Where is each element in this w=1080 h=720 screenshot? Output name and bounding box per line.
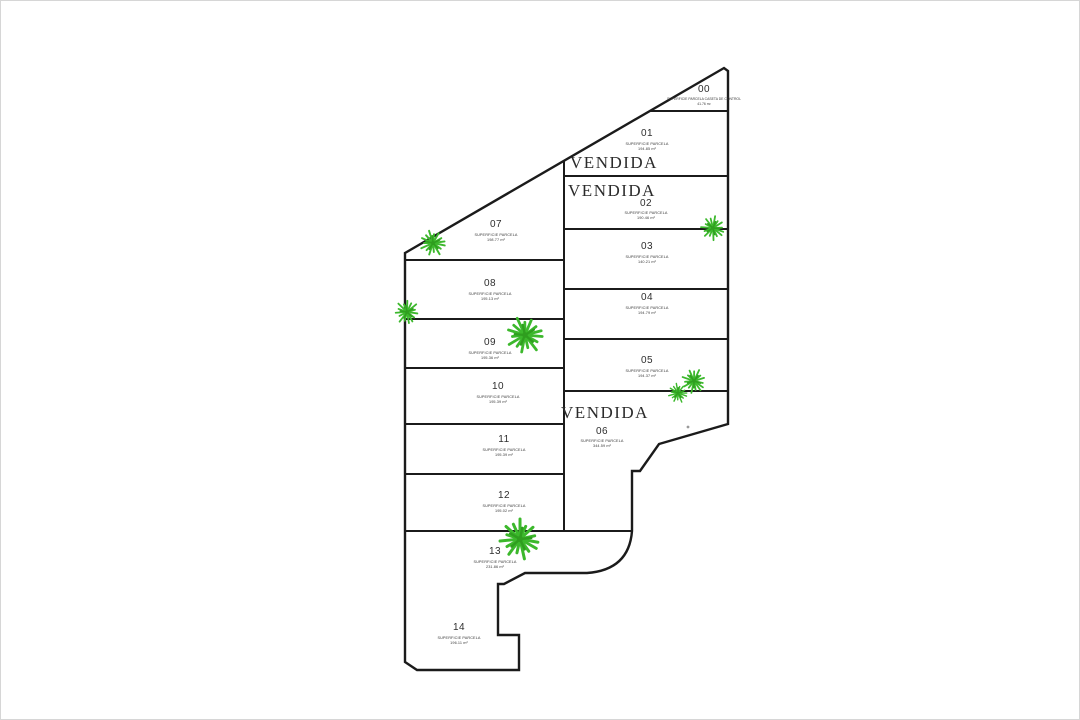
- palm-icon: [495, 515, 545, 565]
- parcel-02-type-label: SUPERFICIE PARCELA: [624, 211, 667, 215]
- parcel-05-type-label: SUPERFICIE PARCELA: [625, 369, 668, 373]
- parcel-01-vendida-label: VENDIDA: [570, 153, 658, 172]
- parcel-01-type-label: SUPERFICIE PARCELA: [625, 142, 668, 146]
- parcel-00-area: 41.76 m²: [697, 102, 711, 106]
- parcel-11-number: 11: [498, 434, 509, 445]
- parcel-06-area: 344.59 m²: [593, 444, 612, 448]
- parcel-02-number: 02: [640, 198, 652, 209]
- parcel-10-type-label: SUPERFICIE PARCELA: [476, 395, 519, 399]
- plot-map-svg: 00 SUPERFICIE PARCELA CASETA DE CONTROL …: [1, 1, 1080, 720]
- parcel-09-number: 09: [484, 337, 496, 348]
- plan-speck: [687, 426, 690, 429]
- parcel-11-type-label: SUPERFICIE PARCELA: [482, 448, 525, 452]
- parcel-12-type-label: SUPERFICIE PARCELA: [482, 504, 525, 508]
- parcel-14-area: 196.11 m²: [450, 641, 468, 645]
- parcel-06-vendida-label: VENDIDA: [561, 403, 649, 422]
- palm-icon: [507, 318, 544, 354]
- parcel-04-type-label: SUPERFICIE PARCELA: [625, 306, 668, 310]
- parcel-11-area: 195.39 m²: [495, 453, 514, 457]
- parcel-04-area: 194.79 m²: [638, 311, 657, 315]
- parcel-03-number: 03: [641, 241, 653, 252]
- parcel-05-area: 194.37 m²: [638, 374, 657, 378]
- parcel-10-area: 195.39 m²: [489, 400, 508, 404]
- parcel-plan-image: 00 SUPERFICIE PARCELA CASETA DE CONTROL …: [0, 0, 1080, 720]
- parcel-13-number: 13: [489, 546, 501, 557]
- parcel-00-type-label: SUPERFICIE PARCELA CASETA DE CONTROL: [667, 97, 741, 101]
- parcel-06-type-label: SUPERFICIE PARCELA: [580, 439, 623, 443]
- parcel-13-area: 231.86 m²: [486, 565, 505, 569]
- parcel-12-number: 12: [498, 490, 510, 501]
- parcel-01-number: 01: [641, 128, 653, 139]
- parcel-00-number: 00: [698, 84, 710, 95]
- parcel-08-area: 195.13 m²: [481, 297, 500, 301]
- parcel-08-type-label: SUPERFICIE PARCELA: [468, 292, 511, 296]
- parcel-07-area: 198.77 m²: [487, 238, 506, 242]
- parcel-01-area: 194.85 m²: [638, 147, 657, 151]
- palm-icon: [394, 299, 419, 325]
- palm-trees: [394, 213, 728, 565]
- parcel-05-number: 05: [641, 355, 653, 366]
- parcel-03-type-label: SUPERFICIE PARCELA: [625, 255, 668, 259]
- parcel-10-number: 10: [492, 381, 504, 392]
- parcel-04-number: 04: [641, 292, 653, 303]
- parcel-06-number: 06: [596, 426, 608, 437]
- parcel-dividers: [405, 111, 728, 531]
- parcel-14-number: 14: [453, 622, 465, 633]
- parcel-09-area: 195.36 m²: [481, 356, 500, 360]
- parcel-13-type-label: SUPERFICIE PARCELA: [473, 560, 516, 564]
- parcel-02-area: 190.46 m²: [637, 216, 656, 220]
- parcel-07-number: 07: [490, 219, 502, 230]
- parcel-08-number: 08: [484, 278, 496, 289]
- parcel-09-type-label: SUPERFICIE PARCELA: [468, 351, 511, 355]
- parcel-12-area: 195.02 m²: [495, 509, 514, 513]
- parcel-14-type-label: SUPERFICIE PARCELA: [437, 636, 480, 640]
- parcel-07-type-label: SUPERFICIE PARCELA: [474, 233, 517, 237]
- parcel-03-area: 140.21 m²: [638, 260, 657, 264]
